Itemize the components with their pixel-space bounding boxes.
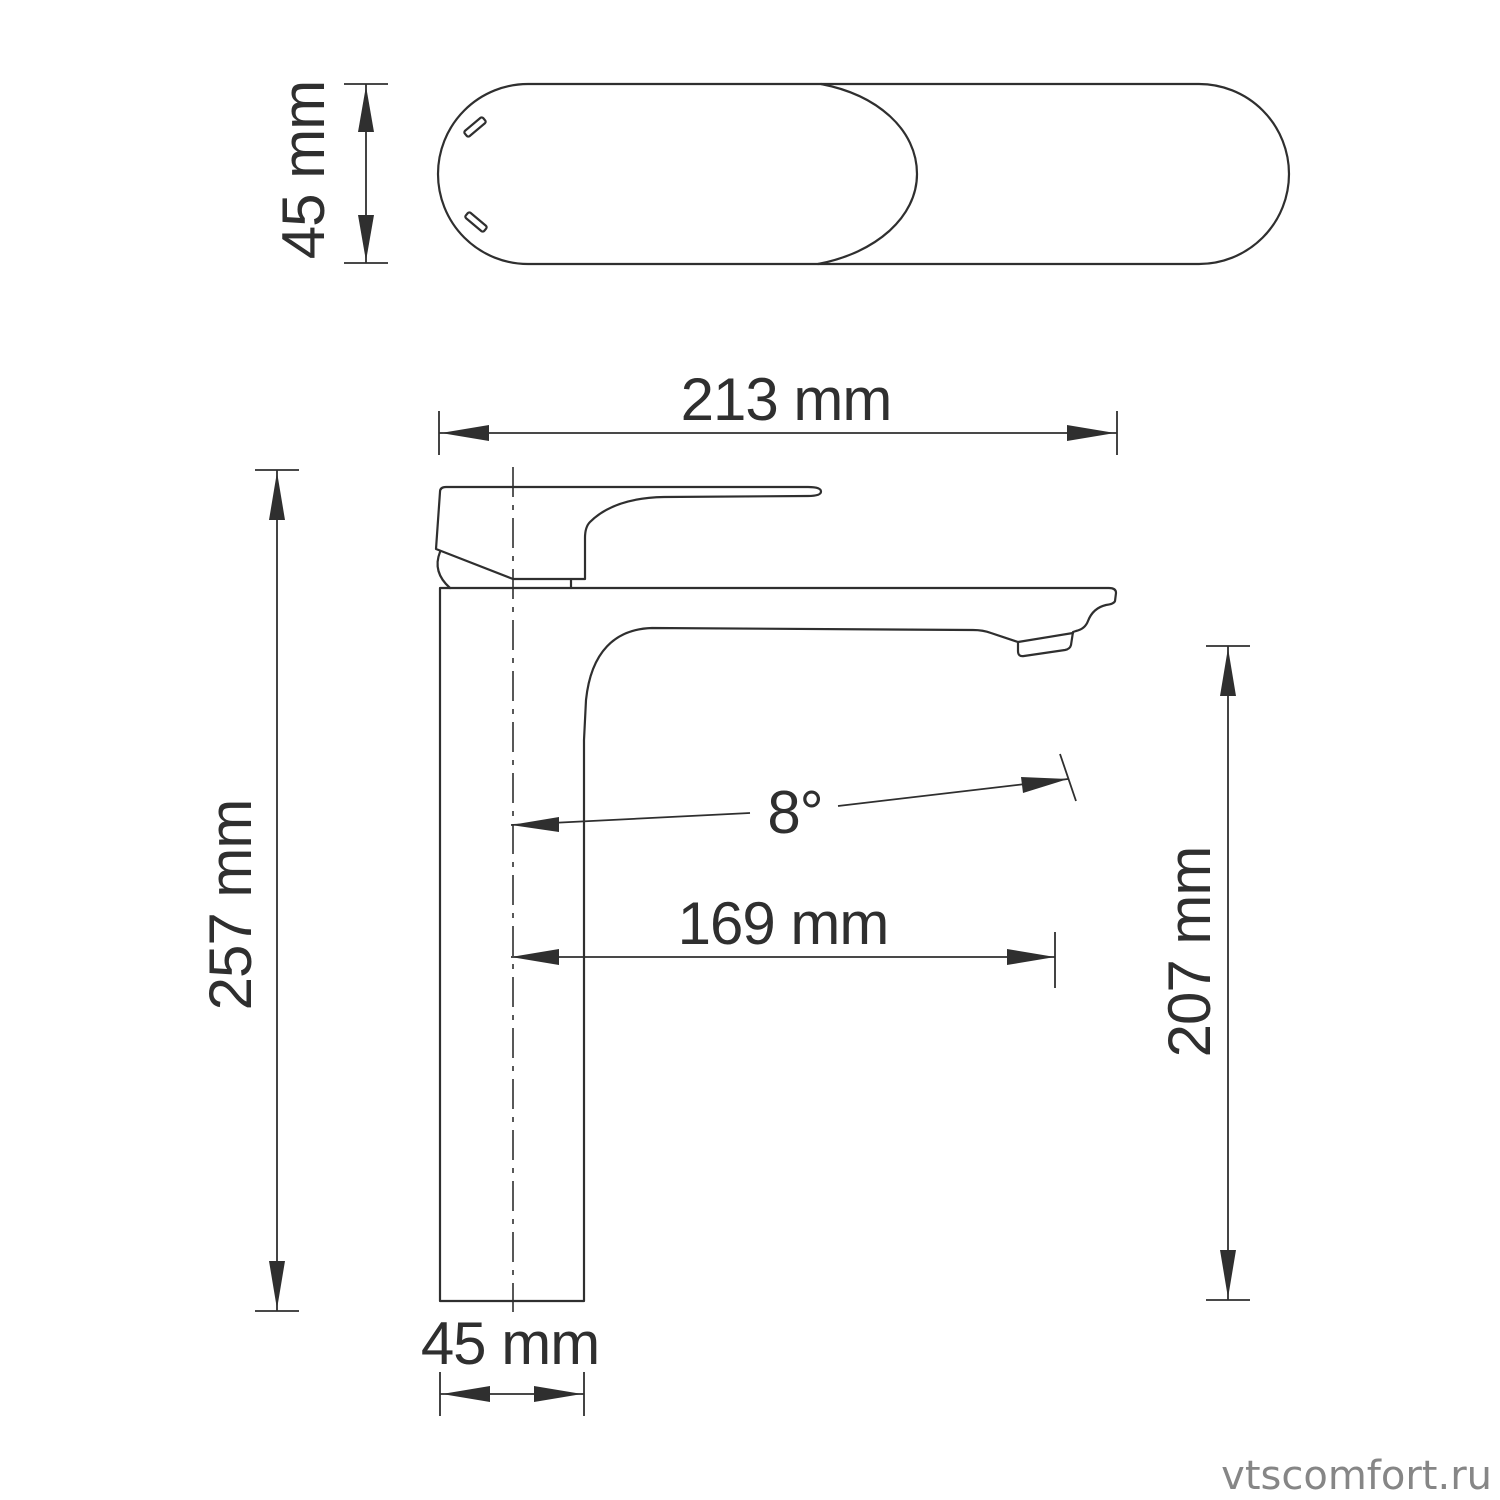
- top-view: [438, 84, 1289, 264]
- dimension-spout-reach: 169 mm: [511, 890, 1055, 988]
- spout-reach-label: 169 mm: [678, 890, 889, 957]
- arrow-down-icon: [1220, 1250, 1236, 1298]
- top-view-height-label: 45 mm: [270, 81, 337, 259]
- dimension-spout-angle: 8°: [511, 754, 1076, 846]
- top-view-handle-curve: [818, 84, 917, 264]
- arrow-up-icon: [1220, 648, 1236, 696]
- arrow-up-icon: [358, 86, 374, 132]
- arrow-left-icon: [442, 1386, 490, 1402]
- arrow-left-icon: [511, 949, 559, 965]
- dimension-spout-height: 207 mm: [1156, 646, 1250, 1300]
- overall-width-label: 213 mm: [681, 366, 892, 433]
- arrow-down-icon: [269, 1261, 285, 1309]
- extension-tick: [1060, 754, 1076, 801]
- aerator-top-line: [1018, 633, 1073, 642]
- arrow-left-icon: [511, 817, 559, 832]
- top-view-outline: [438, 84, 1289, 264]
- dimension-base-width: 45 mm: [421, 1310, 599, 1416]
- arrow-up-icon: [269, 472, 285, 520]
- arrow-right-icon: [1021, 777, 1068, 793]
- arrow-right-icon: [1067, 425, 1115, 441]
- handle-pivot-arc: [438, 552, 450, 588]
- arrow-right-icon: [1007, 949, 1055, 965]
- faucet-technical-drawing: 45 mm 213 mm 257 mm: [0, 0, 1500, 1500]
- arrow-left-icon: [441, 425, 489, 441]
- dimension-top-view-height: 45 mm: [270, 81, 388, 263]
- dimension-overall-height: 257 mm: [197, 470, 299, 1311]
- spout-angle-label: 8°: [767, 779, 822, 846]
- arrow-down-icon: [358, 215, 374, 261]
- top-view-handle-slot: [464, 117, 487, 138]
- arrow-right-icon: [534, 1386, 582, 1402]
- base-width-label: 45 mm: [421, 1310, 599, 1377]
- technical-drawing-page: 45 mm 213 mm 257 mm: [0, 0, 1500, 1500]
- watermark-text: vtscomfort.ru: [1221, 1453, 1492, 1499]
- dimension-overall-width: 213 mm: [439, 366, 1117, 455]
- top-view-handle-slot: [465, 212, 488, 233]
- overall-height-label: 257 mm: [197, 800, 264, 1011]
- spout-height-label: 207 mm: [1156, 847, 1223, 1058]
- handle-outline: [436, 487, 821, 579]
